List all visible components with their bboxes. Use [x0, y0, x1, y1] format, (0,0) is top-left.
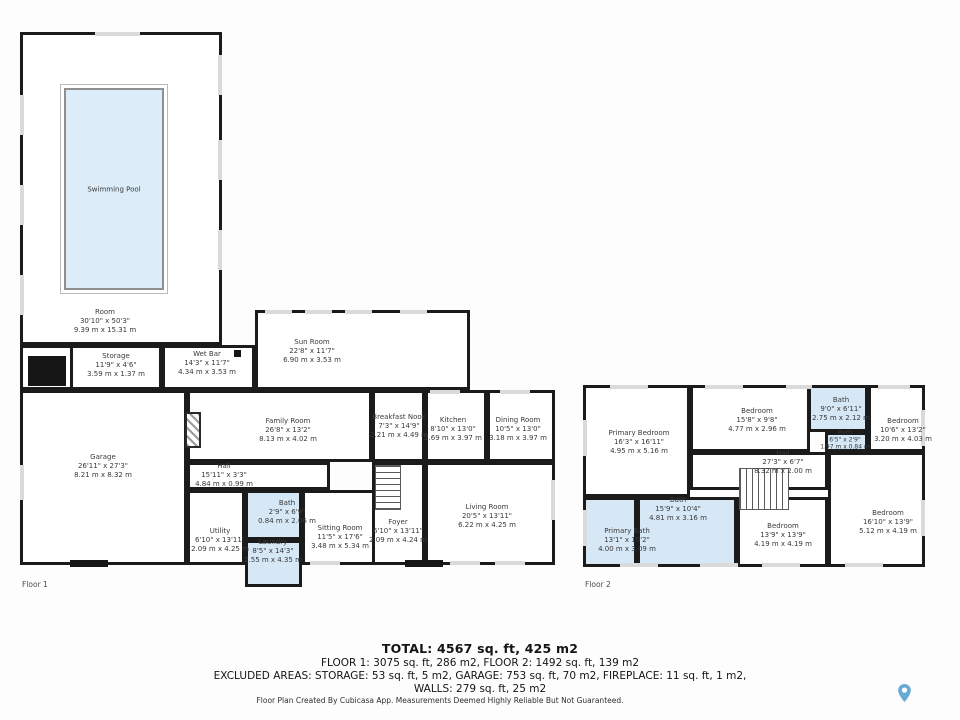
- label-primary-bath: Primary Bath13'1" x 10'2"4.00 m x 3.09 m: [598, 527, 656, 555]
- disclaimer-text: Floor Plan Created By Cubicasa App. Meas…: [0, 696, 880, 705]
- window: [310, 561, 340, 565]
- label-utility: Utility6'10" x 13'11"2.09 m x 4.25 m: [191, 527, 249, 555]
- label-family-room: Family Room26'8" x 13'2"8.13 m x 4.02 m: [259, 417, 317, 445]
- label-room: Room30'10" x 50'3"9.39 m x 15.31 m: [74, 308, 136, 336]
- label-bedroom-top-right: Bedroom10'6" x 13'2"3.20 m x 4.03 m: [874, 417, 932, 445]
- label-sitting-room: Sitting Room11'5" x 17'6"3.48 m x 5.34 m: [311, 524, 369, 552]
- label-storage: Storage11'9" x 4'6"3.59 m x 1.37 m: [87, 352, 145, 380]
- label-bedroom-bottom-right: Bedroom16'10" x 13'9"5.12 m x 4.19 m: [859, 509, 917, 537]
- window: [400, 310, 427, 314]
- label-hall-f2: Hall27'3" x 6'7"8.32 m x 2.00 m: [754, 449, 812, 477]
- label-foyer: Foyer6'10" x 13'11"2.09 m x 4.24 m: [369, 518, 427, 546]
- window: [218, 140, 222, 180]
- total-area-text: TOTAL: 4567 sq. ft, 425 m2: [0, 641, 960, 656]
- window: [583, 510, 587, 546]
- window: [583, 420, 587, 456]
- window: [610, 385, 648, 389]
- window: [620, 563, 658, 567]
- chimney-mass: [28, 356, 66, 386]
- window: [700, 563, 738, 567]
- window: [450, 561, 480, 565]
- window: [551, 480, 555, 520]
- label-bedroom-top-middle: Bedroom15'8" x 9'8"4.77 m x 2.96 m: [728, 407, 786, 435]
- door-mark: [405, 560, 443, 567]
- window: [786, 385, 812, 389]
- window: [95, 32, 140, 36]
- window: [495, 561, 525, 565]
- label-bath-top: Bath9'0" x 6'11"2.75 m x 2.12 m: [812, 396, 870, 424]
- label-sun-room: Sun Room22'8" x 11'7"6.90 m x 3.53 m: [283, 338, 341, 366]
- label-breakfast-nook: Breakfast Nook7'3" x 14'9"2.21 m x 4.49 …: [370, 413, 428, 441]
- window: [265, 310, 292, 314]
- label-bath-small: Bath6'5" x 2'9"1.97 m x 0.84 m: [820, 431, 870, 452]
- window: [705, 385, 743, 389]
- window: [305, 310, 332, 314]
- label-bath-f1: Bath2'9" x 6'9"0.84 m x 2.06 m: [258, 499, 316, 527]
- label-hall-f1: Hall15'11" x 3'3"4.84 m x 0.99 m: [195, 462, 253, 490]
- excluded-areas-text: EXCLUDED AREAS: STORAGE: 53 sq. ft, 5 m2…: [0, 670, 960, 682]
- floor1-label: Floor 1: [22, 580, 48, 589]
- fireplace: [185, 412, 201, 448]
- window: [345, 310, 372, 314]
- floor2-label: Floor 2: [585, 580, 611, 589]
- window: [218, 230, 222, 270]
- window: [20, 275, 24, 315]
- window: [20, 185, 24, 225]
- window: [500, 390, 530, 394]
- window: [20, 465, 24, 500]
- floor-plan-page: Swimming Pool Room30'10" x 50'3"9.39 m x…: [0, 0, 960, 720]
- label-garage: Garage26'11" x 27'3"8.21 m x 8.32 m: [74, 453, 132, 481]
- label-laundry: Laundry8'5" x 14'3"2.55 m x 4.35 m: [244, 538, 302, 566]
- cubicasa-map-pin-icon: [898, 684, 911, 706]
- window: [218, 55, 222, 95]
- label-wet-bar: Wet Bar14'3" x 11'7"4.34 m x 3.53 m: [178, 350, 236, 378]
- window: [762, 563, 800, 567]
- window: [845, 563, 883, 567]
- label-swimming-pool: Swimming Pool: [87, 185, 140, 194]
- label-dining-room: Dining Room10'5" x 13'0"3.18 m x 3.97 m: [489, 416, 547, 444]
- floor-areas-text: FLOOR 1: 3075 sq. ft, 286 m2, FLOOR 2: 1…: [0, 657, 960, 669]
- garage-door-mark: [70, 560, 108, 567]
- window: [921, 500, 925, 536]
- label-primary-bedroom: Primary Bedroom16'3" x 16'11"4.95 m x 5.…: [609, 429, 670, 457]
- area-summary: TOTAL: 4567 sq. ft, 425 m2 FLOOR 1: 3075…: [0, 641, 960, 695]
- label-living-room: Living Room20'5" x 13'11"6.22 m x 4.25 m: [458, 503, 516, 531]
- stairs-f1: [375, 465, 401, 510]
- window: [430, 390, 460, 394]
- window: [878, 385, 910, 389]
- window: [20, 95, 24, 135]
- label-bath-middle: Bath15'9" x 10'4"4.81 m x 3.16 m: [649, 496, 707, 524]
- walls-area-text: WALLS: 279 sq. ft, 25 m2: [0, 683, 960, 695]
- label-kitchen: Kitchen8'10" x 13'0"2.69 m x 3.97 m: [424, 416, 482, 444]
- label-bedroom-bottom-middle: Bedroom13'9" x 13'9"4.19 m x 4.19 m: [754, 522, 812, 550]
